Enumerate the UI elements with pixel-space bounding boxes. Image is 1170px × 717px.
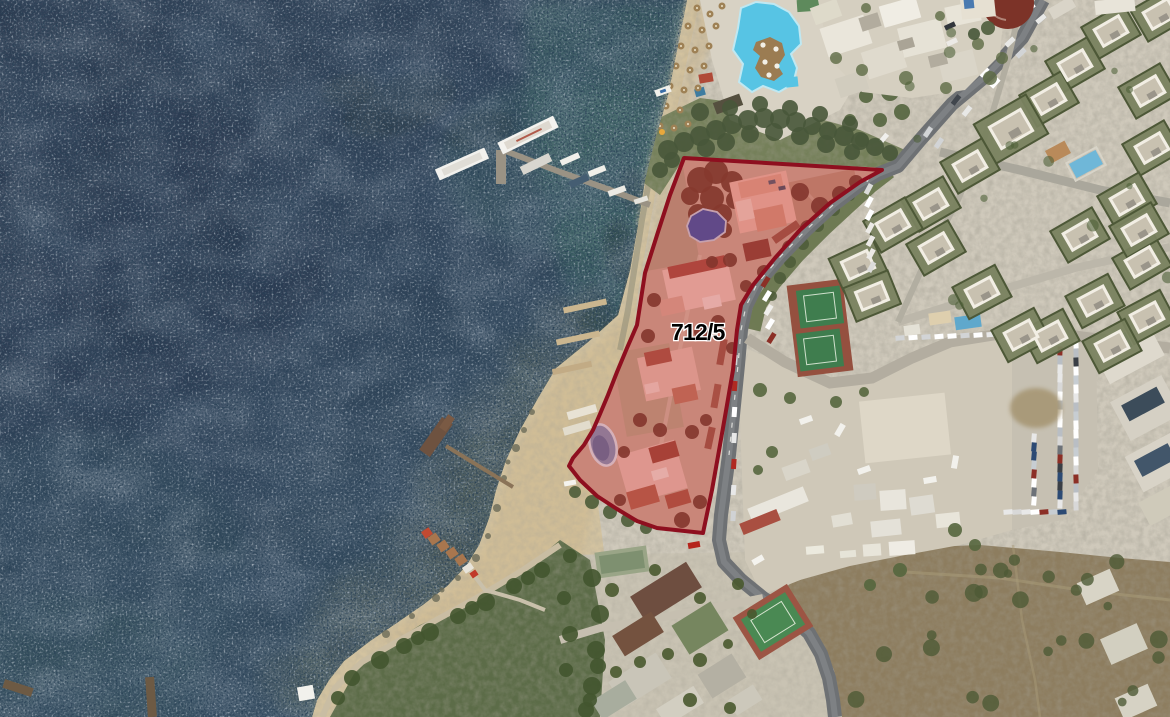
svg-text:712/5: 712/5: [671, 319, 726, 345]
